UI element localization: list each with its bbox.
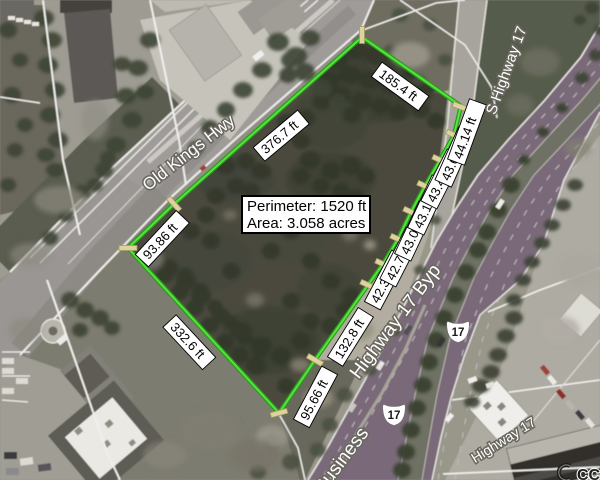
svg-text:CCM: CCM [577, 467, 600, 480]
svg-text:17: 17 [388, 410, 401, 422]
svg-text:17: 17 [452, 327, 465, 339]
svg-text:Area: 3.058 acres: Area: 3.058 acres [247, 215, 365, 232]
svg-text:Perimeter: 1520 ft: Perimeter: 1520 ft [247, 198, 367, 215]
